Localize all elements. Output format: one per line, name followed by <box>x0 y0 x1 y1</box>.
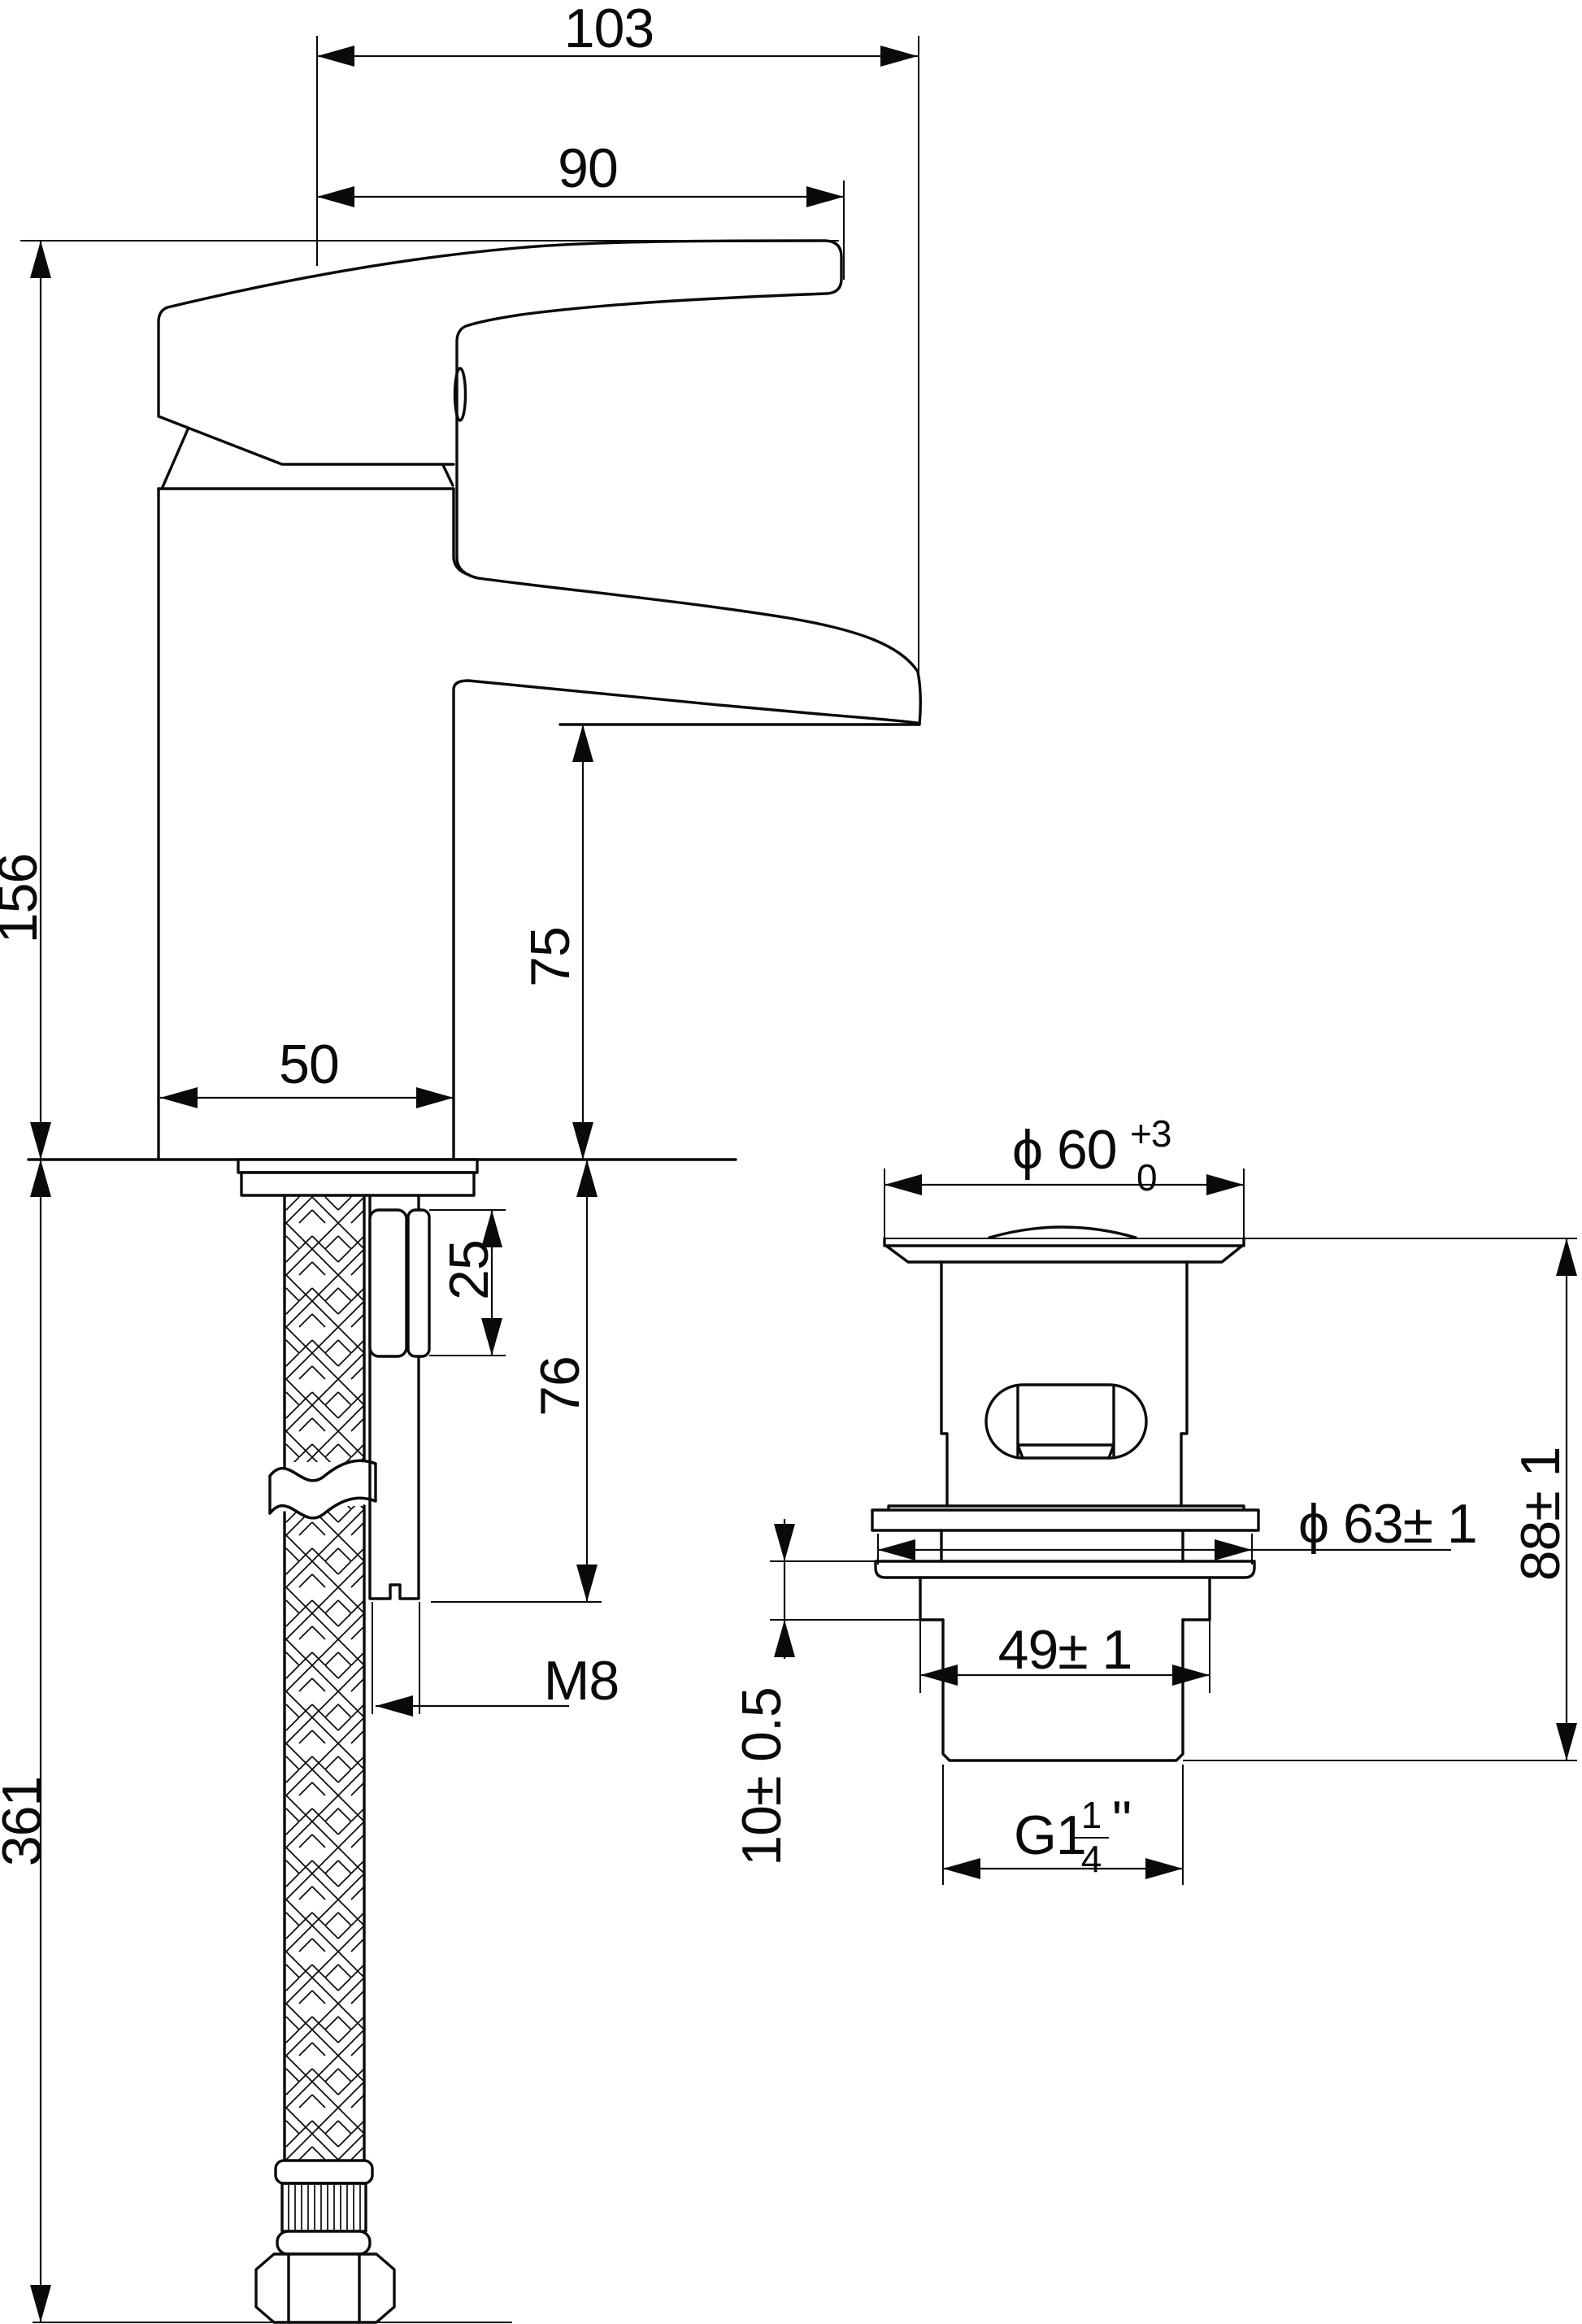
dim-text-g114-num: 1 <box>1081 1794 1102 1836</box>
dimension-25: 25 <box>429 1210 506 1356</box>
washer <box>872 1510 1258 1530</box>
drawing-sheet: 103 90 156 75 <box>0 0 1582 2324</box>
handle-skirt <box>159 307 454 464</box>
arrowhead <box>376 1695 413 1717</box>
arrowhead <box>160 1087 198 1108</box>
dimension-90: 90 <box>317 137 844 280</box>
arrowhead <box>774 1620 795 1657</box>
dimension-phi60: ϕ 60 +3 0 <box>884 1112 1244 1241</box>
arrowhead <box>30 2285 51 2322</box>
dim-text-103: 103 <box>564 0 654 59</box>
dimension-phi63: ϕ 63± 1 <box>878 1493 1477 1565</box>
arrowhead <box>884 1174 922 1195</box>
body-right-and-spout-bottom <box>454 681 917 1160</box>
arrowhead <box>576 1160 598 1197</box>
waste-view: ϕ 60 +3 0 88± 1 ϕ 63± 1 49± 1 <box>731 1112 1577 1885</box>
dim-text-m8: M8 <box>544 1650 619 1712</box>
arrowhead <box>920 1665 958 1686</box>
arrowhead <box>774 1524 795 1561</box>
dimension-361: 361 <box>0 1160 512 2322</box>
flange-plate <box>884 1238 1244 1262</box>
dim-text-phi63: ϕ 63± 1 <box>1298 1493 1477 1555</box>
technical-drawing: 103 90 156 75 <box>0 0 1582 2324</box>
handle-and-spout <box>159 241 920 725</box>
arrowhead <box>1206 1174 1244 1195</box>
dim-text-76: 76 <box>529 1356 591 1417</box>
dimension-50: 50 <box>160 1034 454 1108</box>
arrowhead <box>806 186 844 207</box>
dim-text-phi60-tol-lower: 0 <box>1137 1156 1157 1199</box>
dim-text-g114-unit: " <box>1112 1790 1131 1852</box>
supply-hose <box>256 1195 394 2322</box>
hose-bead-collar <box>277 2231 370 2254</box>
body-tube <box>941 1530 1183 1561</box>
flange-lip <box>238 1160 477 1173</box>
dim-text-phi60-tol-upper: +3 <box>1130 1112 1171 1155</box>
faucet-view: 103 90 156 75 <box>0 0 920 2322</box>
arrowhead <box>1145 1858 1183 1879</box>
gasket <box>876 1561 1254 1578</box>
dimension-49: 49± 1 <box>920 1582 1210 1693</box>
arrowhead <box>1556 1238 1577 1276</box>
label-m8: M8 <box>372 1602 619 1717</box>
dim-text-g114-main: G1 <box>1014 1804 1086 1866</box>
ext-lines-103 <box>317 36 919 675</box>
hose-hex-nut <box>256 2254 394 2322</box>
arrowhead <box>1172 1665 1210 1686</box>
arrowhead <box>30 1160 51 1197</box>
dim-text-25: 25 <box>438 1240 500 1300</box>
arrowhead <box>576 1565 598 1602</box>
hose-braid-upper <box>285 1195 364 1462</box>
dimension-75: 75 <box>519 725 593 1160</box>
ref-lines-10 <box>770 1561 920 1620</box>
hex-nut-outline <box>256 2254 394 2322</box>
arrowhead <box>572 1122 593 1160</box>
spacer-block-back <box>408 1210 429 1356</box>
waste-cap-dome <box>989 1227 1136 1238</box>
hose-knurl-lines <box>289 2185 360 2230</box>
spacer-block-front <box>370 1210 406 1356</box>
dome-right-edge <box>443 465 453 485</box>
dim-text-10: 10± 0.5 <box>731 1687 793 1865</box>
faucet-body <box>159 429 919 1160</box>
dim-text-g114-den: 4 <box>1081 1838 1102 1880</box>
waste-flange <box>884 1227 1577 1262</box>
waste-upper-body <box>941 1262 1187 1506</box>
hose-knurl <box>282 2183 366 2231</box>
dimension-10: 10± 0.5 <box>731 1519 920 1866</box>
arrowhead <box>30 1122 51 1160</box>
arrowhead <box>572 725 593 762</box>
arrowhead <box>878 1539 915 1560</box>
dim-text-156: 156 <box>0 854 49 943</box>
dim-text-90: 90 <box>558 137 618 199</box>
overflow-slot <box>986 1385 1146 1458</box>
dim-text-49: 49± 1 <box>998 1619 1132 1681</box>
hose-ferrule-collar <box>276 2161 372 2183</box>
arrowhead <box>943 1858 980 1879</box>
arrowhead <box>880 46 918 67</box>
arrowhead <box>317 46 354 67</box>
flange-body <box>241 1173 474 1195</box>
dimension-156: 156 <box>0 241 839 1160</box>
dim-text-361: 361 <box>0 1777 53 1866</box>
shank <box>920 1578 1210 1620</box>
arrowhead <box>317 186 354 207</box>
arrowhead <box>481 1318 502 1356</box>
arrowhead <box>30 241 51 278</box>
dimension-76: 76 <box>431 1160 602 1602</box>
handle-lever-outline <box>167 241 920 725</box>
dim-text-88: 88± 1 <box>1510 1447 1571 1582</box>
hose-braid-lower <box>285 1506 364 2161</box>
dome-left-edge <box>163 429 188 487</box>
arrowhead <box>1556 1723 1577 1760</box>
dim-text-phi60: ϕ 60 <box>1012 1119 1117 1181</box>
dimension-g114: G1 1 4 " <box>943 1765 1183 1885</box>
overflow-slot-inner <box>1018 1387 1114 1458</box>
dim-text-50: 50 <box>279 1034 339 1095</box>
mounting-hardware <box>370 1195 429 1599</box>
dimension-103: 103 <box>317 0 919 675</box>
arrowhead <box>416 1087 454 1108</box>
arrowhead <box>1215 1539 1252 1560</box>
dim-text-75: 75 <box>519 927 581 987</box>
base-flange <box>238 1160 477 1195</box>
